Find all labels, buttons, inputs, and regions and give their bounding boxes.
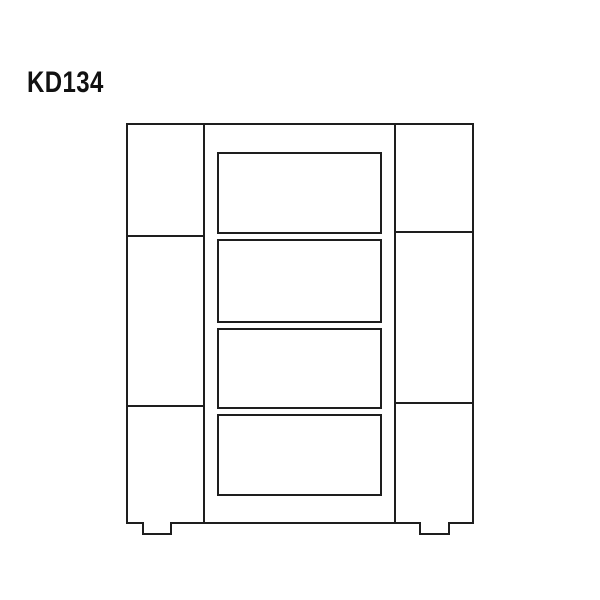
drawer-front-4 — [218, 415, 381, 495]
drawer-front-1 — [218, 153, 381, 233]
cabinet-diagram — [0, 0, 600, 600]
drawer-front-2 — [218, 240, 381, 322]
drawer-front-3 — [218, 329, 381, 408]
diagram-canvas: KD134 — [0, 0, 600, 600]
